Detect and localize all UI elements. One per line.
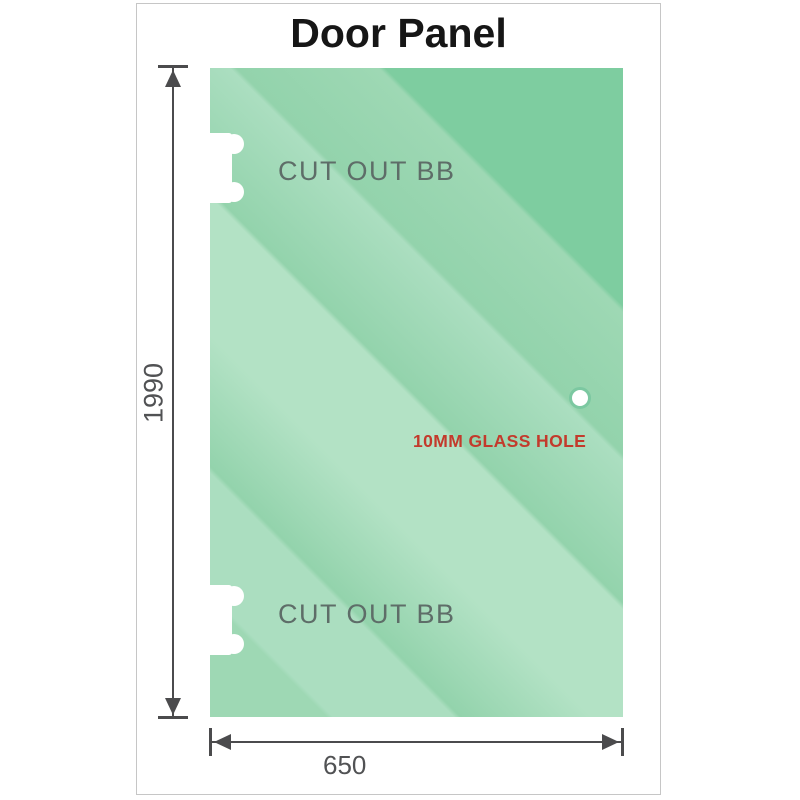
glass-hole [569, 387, 591, 409]
horizontal-dimension-line [210, 741, 623, 743]
arrow-down-icon [165, 698, 181, 715]
cutout-bottom-label: CUT OUT BB [278, 599, 456, 630]
width-dimension-label: 650 [323, 750, 366, 781]
arrow-up-icon [165, 70, 181, 87]
hinge-cutout-shape-icon [210, 133, 246, 204]
diagram-page: Door Panel 1990 CUT OUT BB [0, 0, 800, 800]
arrow-right-icon [602, 734, 619, 750]
page-title: Door Panel [137, 10, 660, 57]
vertical-dimension-line [172, 66, 174, 718]
hinge-cutout-shape-icon [210, 585, 246, 656]
height-dimension-label: 1990 [139, 363, 170, 423]
glass-hole-label: 10MM GLASS HOLE [413, 431, 586, 452]
hinge-cutout-top [210, 133, 246, 204]
hinge-cutout-bottom [210, 585, 246, 656]
arrow-left-icon [214, 734, 231, 750]
cutout-top-label: CUT OUT BB [278, 156, 456, 187]
diagram-card: Door Panel 1990 CUT OUT BB [136, 3, 661, 795]
glass-panel: CUT OUT BB CUT OUT BB 10MM GLASS HOLE [210, 68, 623, 717]
